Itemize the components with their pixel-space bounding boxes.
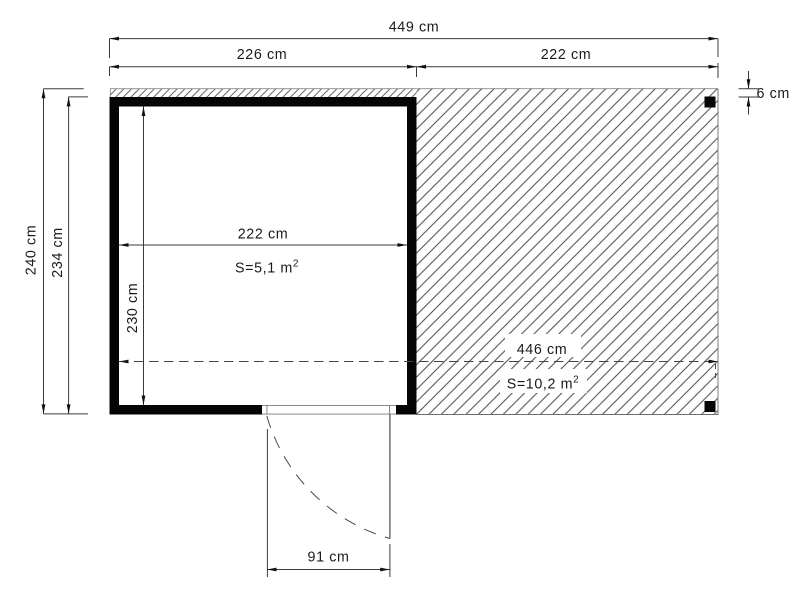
svg-text:449 cm: 449 cm [389,20,439,36]
svg-text:226 cm: 226 cm [237,47,287,63]
svg-text:91 cm: 91 cm [308,550,350,566]
svg-text:S=10,2 m2: S=10,2 m2 [507,375,580,393]
svg-text:446 cm: 446 cm [517,342,567,358]
svg-text:234 cm: 234 cm [50,227,66,277]
svg-text:6 cm: 6 cm [757,86,790,102]
svg-text:240 cm: 240 cm [23,225,39,275]
svg-text:222 cm: 222 cm [541,47,591,63]
svg-text:222 cm: 222 cm [238,227,288,243]
svg-text:230 cm: 230 cm [125,283,141,333]
svg-text:S=5,1 m2: S=5,1 m2 [235,259,299,277]
